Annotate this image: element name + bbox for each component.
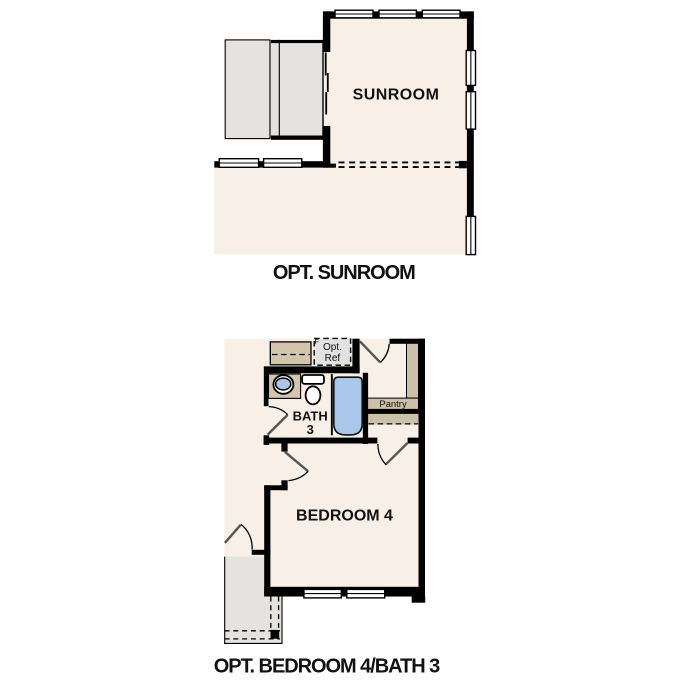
svg-text:Opt.: Opt. bbox=[323, 342, 342, 353]
svg-text:OPT. BEDROOM 4/BATH 3: OPT. BEDROOM 4/BATH 3 bbox=[214, 656, 440, 678]
svg-text:Ref: Ref bbox=[325, 353, 341, 364]
svg-text:Pantry: Pantry bbox=[379, 399, 407, 410]
svg-text:F: F bbox=[314, 337, 319, 346]
svg-text:BEDROOM 4: BEDROOM 4 bbox=[296, 508, 393, 525]
svg-text:3: 3 bbox=[307, 422, 314, 437]
svg-text:OPT. SUNROOM: OPT. SUNROOM bbox=[273, 262, 415, 284]
svg-text:SUNROOM: SUNROOM bbox=[353, 87, 440, 104]
